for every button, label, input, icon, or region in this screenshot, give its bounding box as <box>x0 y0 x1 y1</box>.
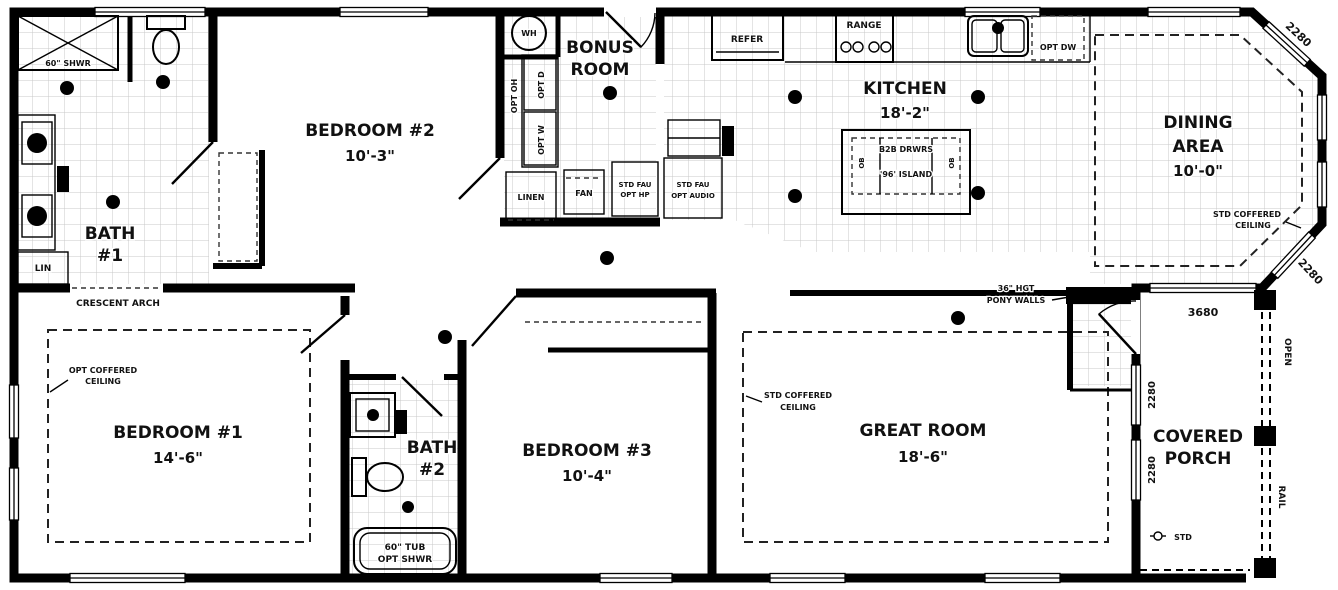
opt-w-label: OPT W <box>537 125 546 155</box>
room-num-bath2: #2 <box>419 460 445 480</box>
opt-dw-label: OPT DW <box>1040 43 1077 52</box>
window-size-2280-porch2: 2280 <box>1147 456 1158 484</box>
room-dim-great-room: 18'-6" <box>898 448 948 466</box>
std-coffered-great-label-1: STD COFFERED <box>764 391 832 400</box>
room-label-dining-1: DINING <box>1163 113 1232 133</box>
window-size-3680: 3680 <box>1188 306 1219 319</box>
window-size-2280-bottomright: 2280 <box>1295 256 1326 288</box>
room-label-porch-2: PORCH <box>1165 449 1232 469</box>
room-label-bedroom1: BEDROOM #1 <box>113 423 243 443</box>
room-label-bath1: BATH <box>85 224 136 244</box>
fau-hp-label-2: OPT HP <box>620 191 649 199</box>
tub-label-2: OPT SHWR <box>378 555 432 565</box>
crescent-arch-label: CRESCENT ARCH <box>76 299 160 309</box>
room-label-kitchen: KITCHEN <box>863 79 947 99</box>
std-coffered-dining-label-1: STD COFFERED <box>1213 210 1281 219</box>
tub-label-1: 60" TUB <box>385 543 426 553</box>
rail-label: RAIL <box>1276 486 1286 509</box>
island-label-1: B2B DRWRS <box>879 145 933 154</box>
room-label-bath2: BATH <box>407 438 458 458</box>
room-label-bonus-2: ROOM <box>571 60 630 80</box>
fau-audio-label-1: STD FAU <box>677 181 710 189</box>
room-label-bonus-1: BONUS <box>566 38 634 58</box>
floor-plan: BATH #1 BEDROOM #2 10'-3" BONUS ROOM KIT… <box>0 0 1338 590</box>
fau-audio-label-2: OPT AUDIO <box>671 192 715 200</box>
room-dim-bedroom2: 10'-3" <box>345 147 395 165</box>
room-dim-bedroom3: 10'-4" <box>562 467 612 485</box>
open-label: OPEN <box>1282 338 1292 366</box>
room-label-great-room: GREAT ROOM <box>860 421 987 441</box>
fan-label: FAN <box>575 189 592 198</box>
island-label-2: '96' ISLAND <box>880 170 933 179</box>
opt-coffered-label-1: OPT COFFERED <box>69 366 138 375</box>
shower-label: 60" SHWR <box>45 59 91 68</box>
electrical-panel-icon <box>722 126 734 156</box>
opt-coffered-label-2: CEILING <box>85 377 121 386</box>
medicine-cabinet2-icon <box>395 410 407 434</box>
island-end-label-right: OB <box>948 157 956 168</box>
island-end-label-left: OB <box>858 157 866 168</box>
linen-label: LINEN <box>518 193 545 202</box>
pony-walls-label-1: 36" HGT <box>998 284 1035 293</box>
refer-label: REFER <box>731 35 763 45</box>
lin-label: LIN <box>35 264 52 274</box>
room-label-bedroom2: BEDROOM #2 <box>305 121 435 141</box>
porch-light-icon <box>1150 532 1166 540</box>
window-size-2280-porch1: 2280 <box>1147 381 1158 409</box>
opt-d-label: OPT D <box>537 71 546 99</box>
room-label-bedroom3: BEDROOM #3 <box>522 441 652 461</box>
room-dim-dining: 10'-0" <box>1173 162 1223 180</box>
opt-oh-label: OPT OH <box>510 79 519 113</box>
fau-hp-label-1: STD FAU <box>619 181 652 189</box>
porch-light-label: STD <box>1174 533 1192 542</box>
room-dim-bedroom1: 14'-6" <box>153 449 203 467</box>
room-label-porch-1: COVERED <box>1153 427 1243 447</box>
pony-walls-label-2: PONY WALLS <box>987 296 1046 305</box>
std-coffered-dining-label-2: CEILING <box>1235 221 1271 230</box>
range-label: RANGE <box>847 21 882 31</box>
room-label-dining-2: AREA <box>1172 137 1224 157</box>
std-coffered-great-label-2: CEILING <box>780 403 816 412</box>
medicine-cabinet-icon <box>57 166 69 192</box>
room-dim-kitchen: 18'-2" <box>880 104 930 122</box>
floor-plan-drawing: BATH #1 BEDROOM #2 10'-3" BONUS ROOM KIT… <box>0 0 1338 590</box>
room-num-bath1: #1 <box>97 246 123 266</box>
wh-label: WH <box>521 29 537 38</box>
